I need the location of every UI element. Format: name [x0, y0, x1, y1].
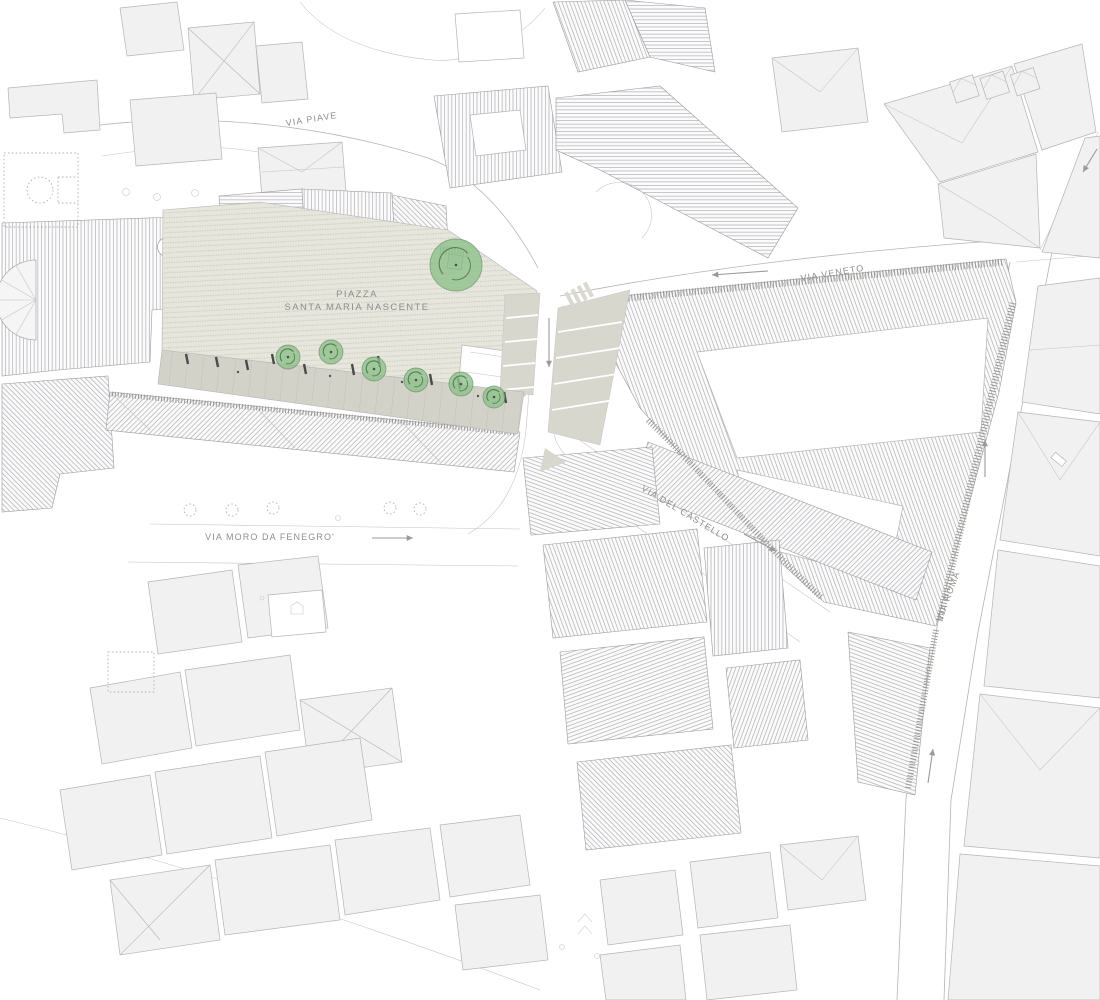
- direction-arrow-icon: [546, 318, 552, 367]
- map-canvas: PIAZZA SANTA MARIA NASCENTE VIA PIAVE VI…: [0, 0, 1100, 1000]
- piazza-label-line1: PIAZZA: [336, 289, 378, 300]
- street-label-via-moro: VIA MORO DA FENEGRO': [205, 532, 335, 542]
- tree-icon: [449, 372, 473, 396]
- tree-icon: [319, 340, 343, 364]
- tree-icon: [276, 345, 300, 369]
- direction-arrow-icon: [712, 271, 768, 278]
- direction-arrow-icon: [372, 535, 413, 541]
- direction-arrow-icon: [928, 749, 935, 783]
- site-plan-map: PIAZZA SANTA MARIA NASCENTE VIA PIAVE VI…: [0, 0, 1100, 1000]
- piazza-label-line2: SANTA MARIA NASCENTE: [284, 302, 429, 313]
- tree-icon: [430, 239, 482, 291]
- tree-icon: [362, 357, 386, 381]
- tree-icon: [483, 386, 505, 408]
- direction-arrow-icon: [982, 440, 988, 477]
- tree-icon: [404, 368, 428, 392]
- basketball-court-icon: [4, 153, 78, 227]
- street-label-via-piave: VIA PIAVE: [285, 110, 338, 128]
